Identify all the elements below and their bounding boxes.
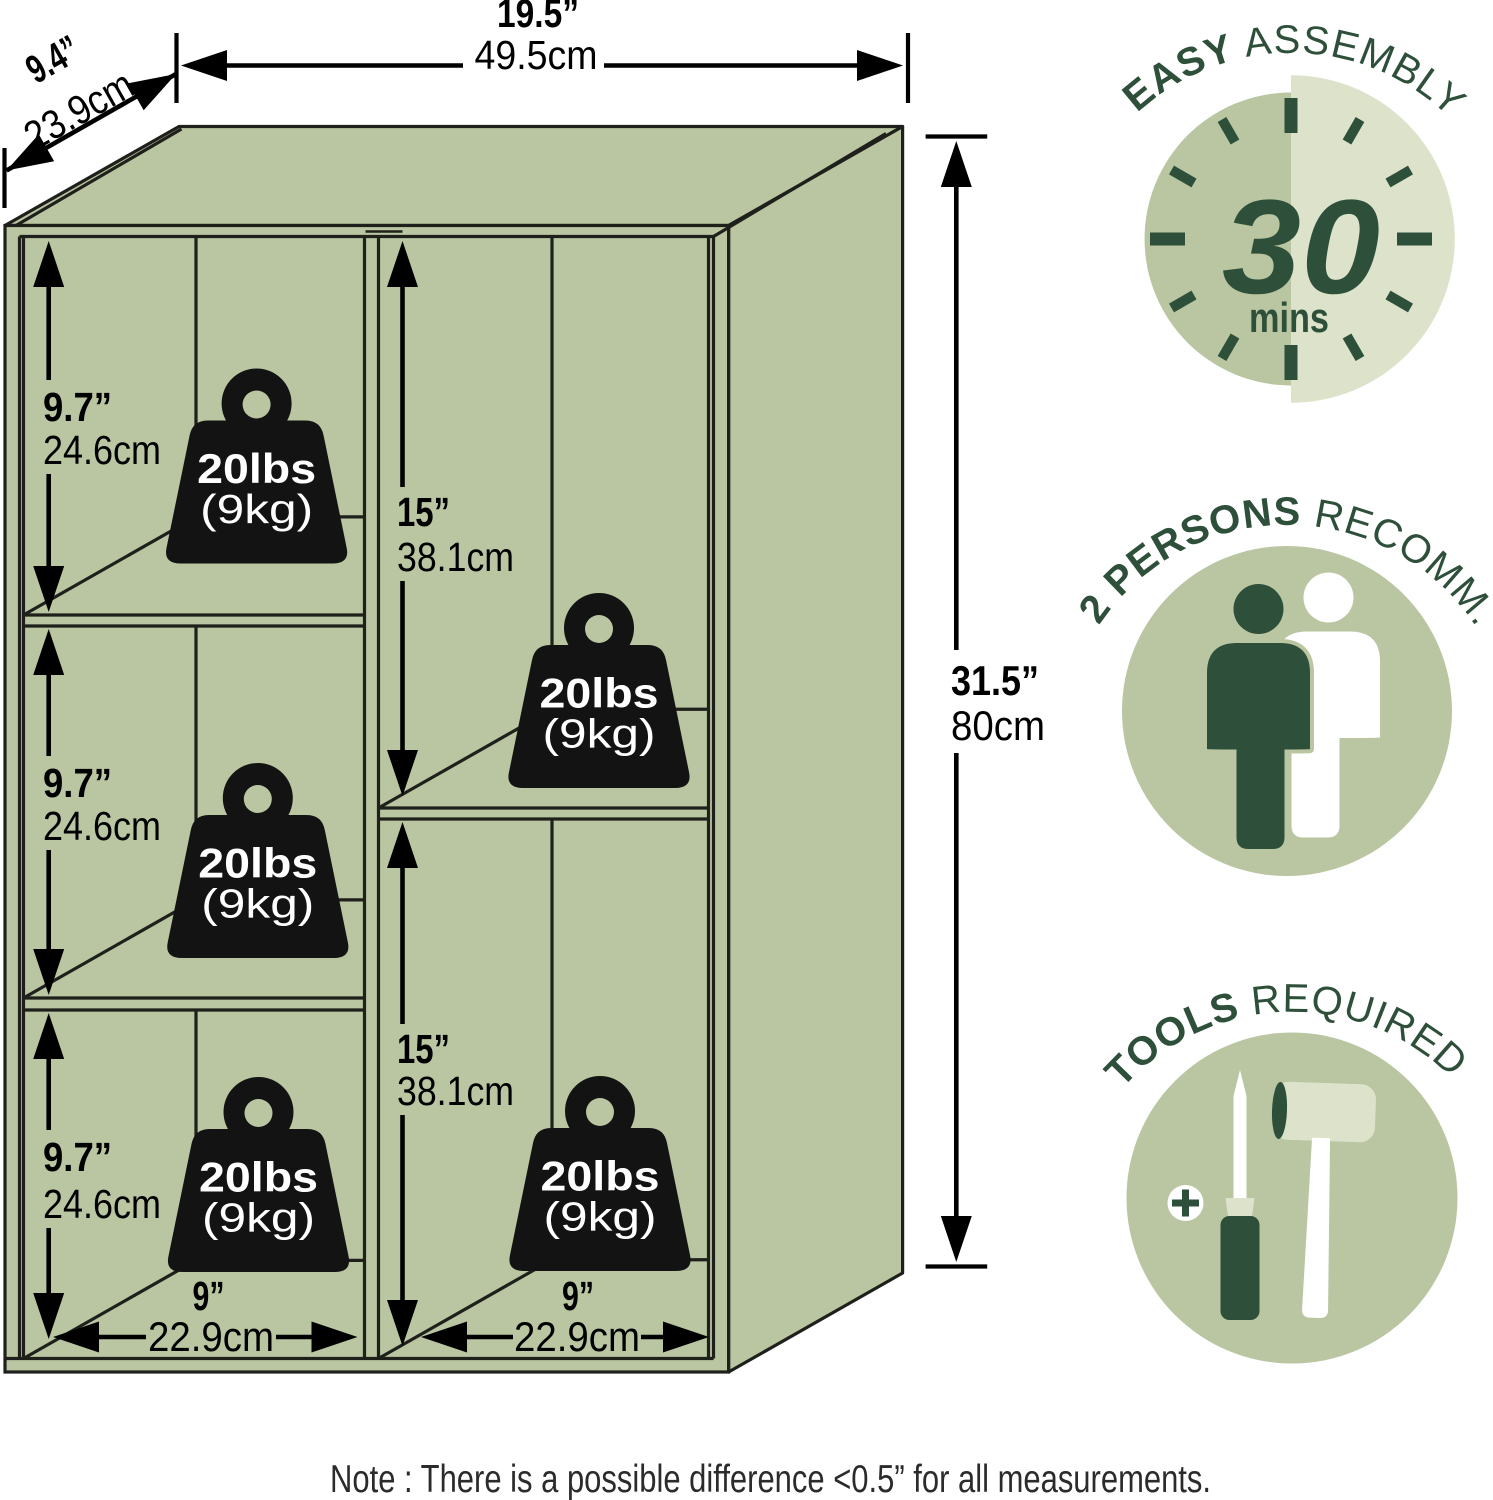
- svg-text:(9kg): (9kg): [544, 1194, 657, 1240]
- svg-text:20lbs: 20lbs: [198, 840, 317, 887]
- svg-text:20lbs: 20lbs: [541, 1153, 660, 1200]
- svg-text:(9kg): (9kg): [543, 711, 656, 757]
- svg-text:Note : There is a possible dif: Note : There is a possible difference <0…: [330, 1458, 1211, 1500]
- svg-text:24.6cm: 24.6cm: [43, 1181, 161, 1227]
- svg-text:(9kg): (9kg): [202, 1195, 315, 1241]
- svg-text:80cm: 80cm: [951, 702, 1045, 749]
- svg-text:9.7”: 9.7”: [43, 760, 112, 806]
- svg-text:24.6cm: 24.6cm: [43, 803, 161, 849]
- svg-text:38.1cm: 38.1cm: [397, 534, 514, 580]
- svg-text:38.1cm: 38.1cm: [397, 1068, 514, 1114]
- svg-text:20lbs: 20lbs: [199, 1154, 318, 1201]
- svg-text:49.5cm: 49.5cm: [475, 32, 598, 78]
- svg-text:9.7”: 9.7”: [43, 1134, 112, 1180]
- svg-text:22.9cm: 22.9cm: [514, 1313, 640, 1360]
- svg-text:20lbs: 20lbs: [540, 670, 659, 717]
- svg-text:31.5”: 31.5”: [951, 657, 1039, 704]
- svg-text:19.5”: 19.5”: [497, 0, 579, 36]
- svg-text:(9kg): (9kg): [200, 486, 313, 532]
- svg-text:(9kg): (9kg): [201, 881, 314, 927]
- svg-text:20lbs: 20lbs: [197, 445, 316, 492]
- svg-text:22.9cm: 22.9cm: [148, 1313, 274, 1360]
- svg-text:mins: mins: [1249, 294, 1329, 341]
- svg-text:9.7”: 9.7”: [43, 384, 112, 430]
- svg-text:24.6cm: 24.6cm: [43, 427, 161, 473]
- svg-text:15”: 15”: [397, 489, 450, 535]
- svg-text:15”: 15”: [397, 1026, 450, 1072]
